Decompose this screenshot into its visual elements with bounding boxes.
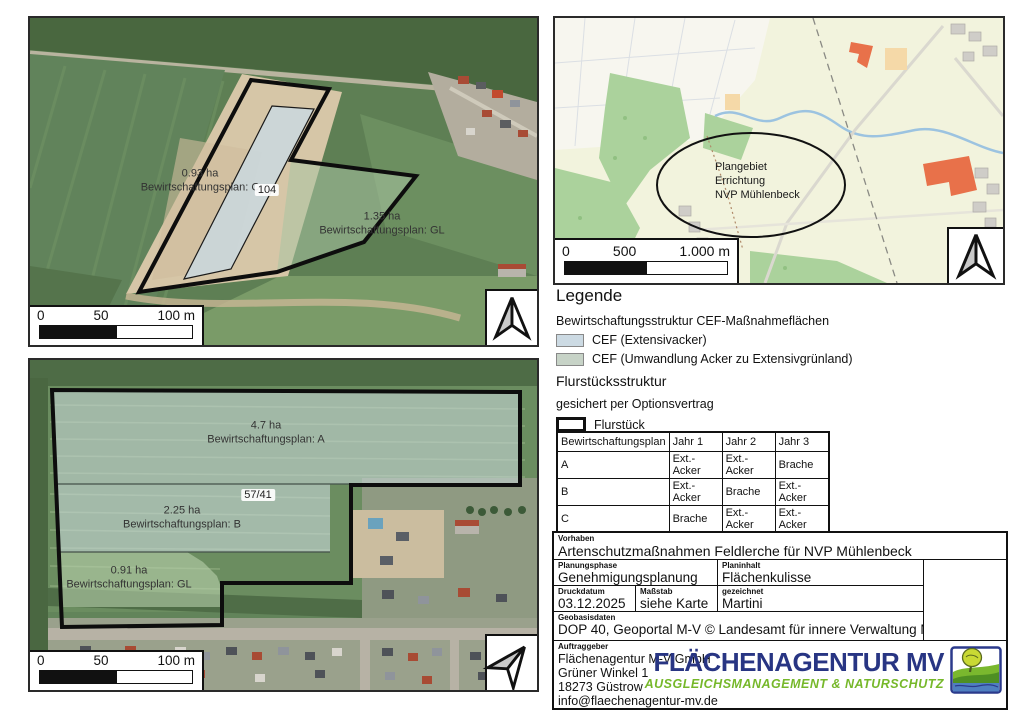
field-label: Druckdatum	[554, 586, 635, 597]
cell: Ext.-Acker	[722, 452, 775, 479]
field-value: Martini	[718, 597, 923, 612]
scalebar-tick: 0	[562, 243, 570, 259]
scalebar-tick: 50	[93, 653, 108, 668]
cell: Ext.-Acker	[775, 506, 829, 533]
map-site-1: 0.93 ha Bewirtschaftungsplan: C 104 1.35…	[28, 16, 539, 347]
vorhaben-field: Vorhaben Artenschutzmaßnahmen Feldlerche…	[554, 533, 1006, 560]
flurstueck-swatch	[556, 417, 586, 432]
legend-item-label: Flurstück	[594, 418, 645, 432]
north-arrow-icon	[947, 227, 1005, 285]
legend-item-cef-gruenland: CEF (Umwandlung Acker zu Extensivgrünlan…	[556, 352, 996, 366]
legend-item-flurstueck: Flurstück	[556, 417, 996, 432]
table-row: C Brache Ext.-Acker Ext.-Acker	[557, 506, 829, 533]
cell: C	[557, 506, 669, 533]
druckdatum-field: Druckdatum 03.12.2025	[554, 586, 635, 611]
address-line: info@flaechenagentur-mv.de	[558, 694, 1006, 708]
cell: Ext.-Acker	[775, 479, 829, 506]
cell: Brache	[669, 506, 722, 533]
cell: B	[557, 479, 669, 506]
field-value: Artenschutzmaßnahmen Feldlerche für NVP …	[554, 544, 1006, 559]
map-site-2: 4.7 ha Bewirtschaftungsplan: A 57/41 2.2…	[28, 358, 539, 692]
plan-sheet: 0.93 ha Bewirtschaftungsplan: C 104 1.35…	[0, 0, 1024, 714]
column-header: Jahr 1	[669, 432, 722, 452]
scalebar: 0 50 100 m	[28, 305, 204, 347]
aerial-image	[30, 18, 537, 345]
field-value: siehe Karte	[636, 597, 717, 612]
overview-map: Plangebiet Errichtung NVP Mühlenbeck 0 5…	[553, 16, 1005, 285]
parcel-gl-label: 1.35 ha Bewirtschaftungsplan: GL	[319, 210, 444, 239]
legend-group-title: Bewirtschaftungsstruktur CEF-Maßnahmeflä…	[556, 314, 996, 328]
massstab-field: Maßstab siehe Karte	[635, 586, 717, 611]
geobasisdaten-field: Geobasisdaten DOP 40, Geoportal M-V © La…	[554, 612, 923, 640]
north-arrow-icon	[485, 634, 539, 692]
field-label: Maßstab	[636, 586, 717, 597]
legend-item-label: CEF (Umwandlung Acker zu Extensivgrünlan…	[592, 352, 853, 366]
column-header: Bewirtschaftungsplan	[557, 432, 669, 452]
field-value: DOP 40, Geoportal M-V © Landesamt für in…	[554, 623, 923, 638]
parcel-gl-label: 0.91 ha Bewirtschaftungsplan: GL	[66, 564, 191, 593]
title-block: Vorhaben Artenschutzmaßnahmen Feldlerche…	[552, 531, 1008, 710]
gezeichnet-field: gezeichnet Martini	[717, 586, 923, 611]
legend-item-label: CEF (Extensivacker)	[592, 333, 707, 347]
parcel-b-label: 2.25 ha Bewirtschaftungsplan: B	[123, 504, 241, 533]
logo-text-part2: AGENTUR MV	[774, 647, 944, 677]
logo-text-part1: FLÄCHEN	[654, 647, 775, 677]
cell: Ext.-Acker	[669, 479, 722, 506]
north-arrow-icon	[485, 289, 539, 347]
cef-gruenland-swatch	[556, 353, 584, 366]
scalebar: 0 500 1.000 m	[553, 238, 739, 285]
legend: Legende Bewirtschaftungsstruktur CEF-Maß…	[556, 286, 996, 437]
legend-group-title: Flurstücksstruktur	[556, 373, 996, 389]
legend-title: Legende	[556, 286, 996, 306]
field-label: Geobasisdaten	[554, 612, 923, 623]
plan-area-callout: Plangebiet Errichtung NVP Mühlenbeck	[715, 160, 800, 202]
flurstueck-number: 104	[255, 184, 279, 196]
field-label: gezeichnet	[718, 586, 923, 597]
field-label: Vorhaben	[554, 533, 1006, 544]
scalebar-tick: 0	[37, 308, 45, 323]
cell: Ext.-Acker	[669, 452, 722, 479]
scalebar-tick: 500	[613, 243, 636, 259]
scalebar-tick: 100 m	[157, 653, 195, 668]
parcel-c-label: 0.93 ha Bewirtschaftungsplan: C	[141, 167, 260, 196]
column-header: Jahr 2	[722, 432, 775, 452]
logo-wordmark: FLÄCHENAGENTUR MV	[645, 649, 944, 675]
column-header: Jahr 3	[775, 432, 829, 452]
cef-extensivacker-swatch	[556, 334, 584, 347]
scalebar-tick: 50	[93, 308, 108, 323]
flaechenagentur-logo: FLÄCHENAGENTUR MV AUSGLEICHSMANAGEMENT &…	[645, 649, 944, 691]
field-value: Genehmigungsplanung	[554, 571, 717, 586]
flurstueck-number: 57/41	[241, 489, 275, 501]
logo-tagline: AUSGLEICHSMANAGEMENT & NATURSCHUTZ	[645, 677, 944, 691]
field-value: 03.12.2025	[554, 597, 635, 612]
planungsphase-field: Planungsphase Genehmigungsplanung	[554, 560, 717, 585]
scalebar-tick: 100 m	[157, 308, 195, 323]
empty-cell	[923, 560, 1006, 640]
table-header-row: Bewirtschaftungsplan Jahr 1 Jahr 2 Jahr …	[557, 432, 829, 452]
auftraggeber-field: Auftraggeber Flächenagentur M-V GmbH Grü…	[554, 640, 1006, 710]
aerial-image	[30, 360, 537, 690]
scalebar-tick: 0	[37, 653, 45, 668]
cell: Ext.-Acker	[722, 506, 775, 533]
landscape-logo-icon	[950, 646, 1002, 694]
field-label: Planungsphase	[554, 560, 717, 571]
construction-site	[352, 510, 444, 578]
cell: A	[557, 452, 669, 479]
parcel-a-label: 4.7 ha Bewirtschaftungsplan: A	[207, 419, 324, 448]
scalebar-tick: 1.000 m	[679, 243, 730, 259]
cell: Brache	[722, 479, 775, 506]
planinhalt-field: Planinhalt Flächenkulisse	[717, 560, 923, 585]
table-row: A Ext.-Acker Ext.-Acker Brache	[557, 452, 829, 479]
scalebar: 0 50 100 m	[28, 650, 204, 692]
legend-note: gesichert per Optionsvertrag	[556, 397, 996, 411]
cell: Brache	[775, 452, 829, 479]
field-value: Flächenkulisse	[718, 571, 923, 586]
field-label: Planinhalt	[718, 560, 923, 571]
legend-item-cef-extensivacker: CEF (Extensivacker)	[556, 333, 996, 347]
table-row: B Ext.-Acker Brache Ext.-Acker	[557, 479, 829, 506]
